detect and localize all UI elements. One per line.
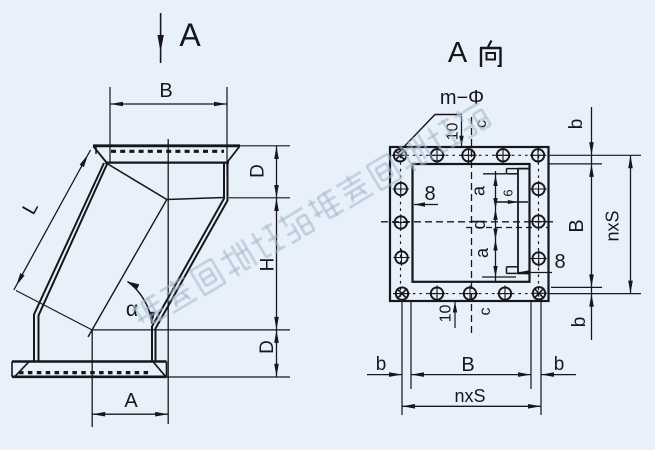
svg-text:nxS: nxS (454, 386, 485, 406)
svg-text:b: b (554, 354, 565, 375)
svg-text:d: d (469, 219, 489, 229)
svg-text:B: B (461, 354, 474, 376)
svg-text:10: 10 (438, 305, 455, 323)
svg-text:m−Φ: m−Φ (440, 87, 484, 109)
svg-text:nxS: nxS (603, 210, 623, 241)
svg-text:b: b (376, 354, 387, 375)
svg-text:A: A (448, 37, 468, 69)
svg-text:H: H (258, 258, 279, 272)
svg-text:a: a (469, 185, 489, 196)
svg-text:B: B (566, 219, 588, 232)
svg-text:A: A (124, 390, 138, 412)
svg-text:a: a (472, 247, 492, 258)
svg-text:b: b (569, 317, 590, 328)
svg-text:c: c (477, 308, 494, 316)
svg-text:8: 8 (424, 183, 435, 205)
svg-text:A: A (179, 17, 201, 53)
svg-text:b: b (566, 119, 587, 130)
svg-text:6: 6 (501, 189, 516, 196)
svg-text:B: B (159, 80, 172, 102)
svg-text:D: D (257, 340, 278, 354)
svg-text:D: D (248, 164, 269, 178)
svg-text:8: 8 (554, 251, 565, 273)
